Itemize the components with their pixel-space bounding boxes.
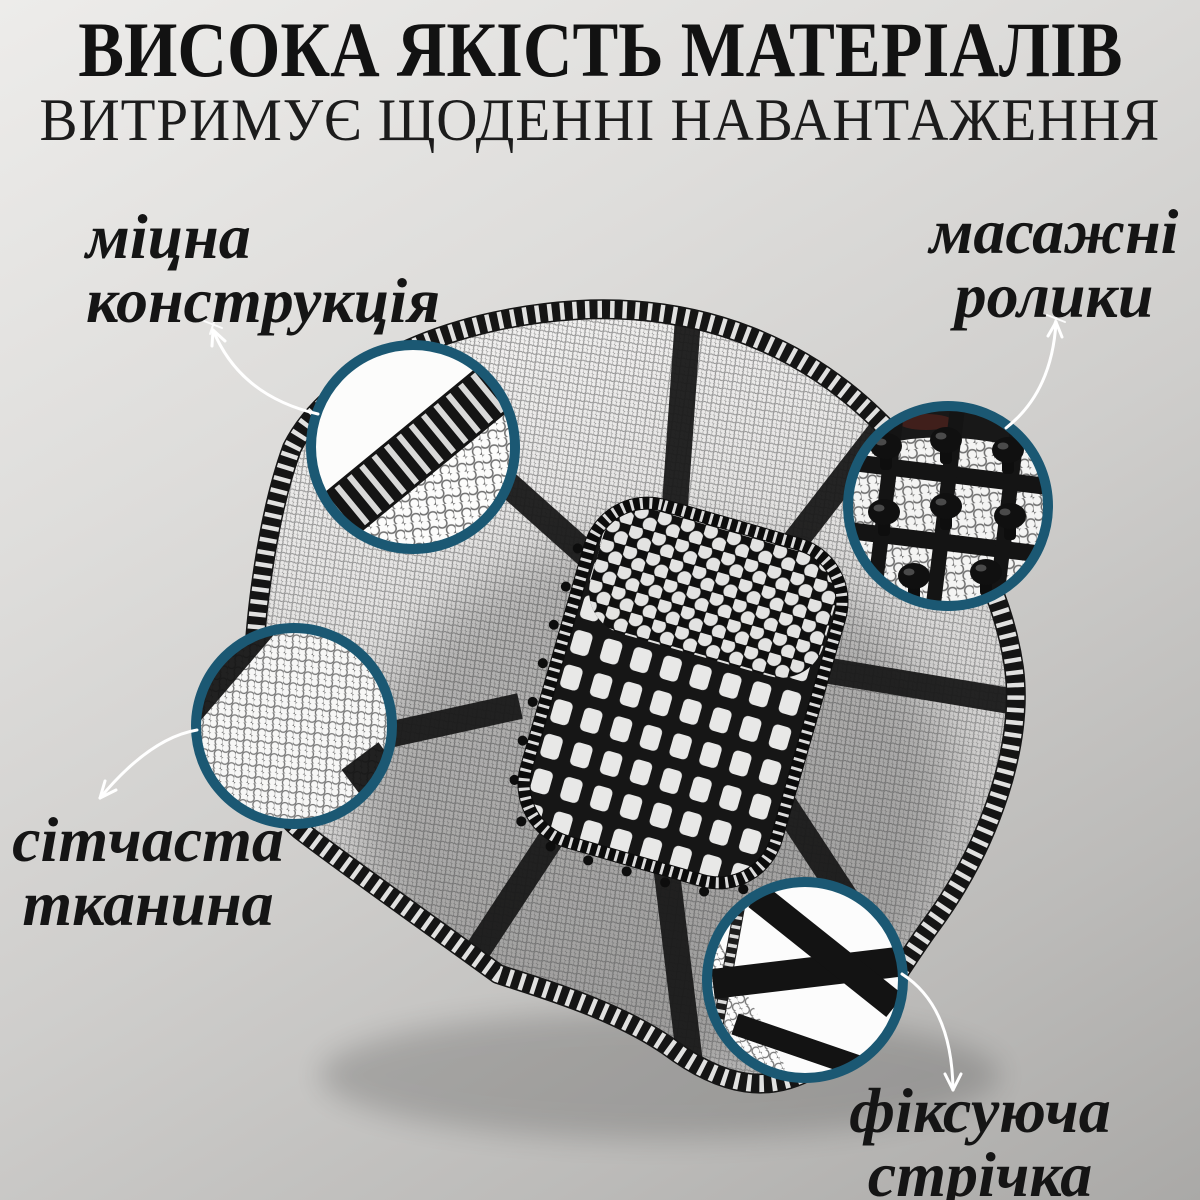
callout-label-mesh: сітчаста тканина [4,808,292,936]
callout-label-line: стрічка [833,1143,1127,1200]
callout-label-line: сітчаста [4,808,292,872]
callout-label-rollers: масажні ролики [918,200,1190,328]
page-title-text: ВИСОКА ЯКІСТЬ МАТЕРІАЛІВ [78,2,1122,98]
callout-label-line: ролики [918,264,1190,328]
page-subtitle-text: ВИТРИМУЄ ЩОДЕННІ НАВАНТАЖЕННЯ [40,88,1161,152]
callout-label-line: масажні [918,200,1190,264]
page-title: ВИСОКА ЯКІСТЬ МАТЕРІАЛІВ [0,2,1200,98]
callout-label-construction: міцна конструкція [86,205,440,333]
callout-label-line: конструкція [86,269,440,333]
arrow-mesh-icon [100,730,197,798]
product-scene [0,0,1200,1200]
callout-label-line: міцна [86,205,440,269]
callout-label-strap: фіксуюча стрічка [833,1079,1127,1200]
callout-label-line: тканина [4,872,292,936]
page-background: ВИСОКА ЯКІСТЬ МАТЕРІАЛІВ ВИТРИМУЄ ЩОДЕНН… [0,0,1200,1200]
callout-label-line: фіксуюча [833,1079,1127,1143]
page-subtitle: ВИТРИМУЄ ЩОДЕННІ НАВАНТАЖЕННЯ [0,88,1200,152]
